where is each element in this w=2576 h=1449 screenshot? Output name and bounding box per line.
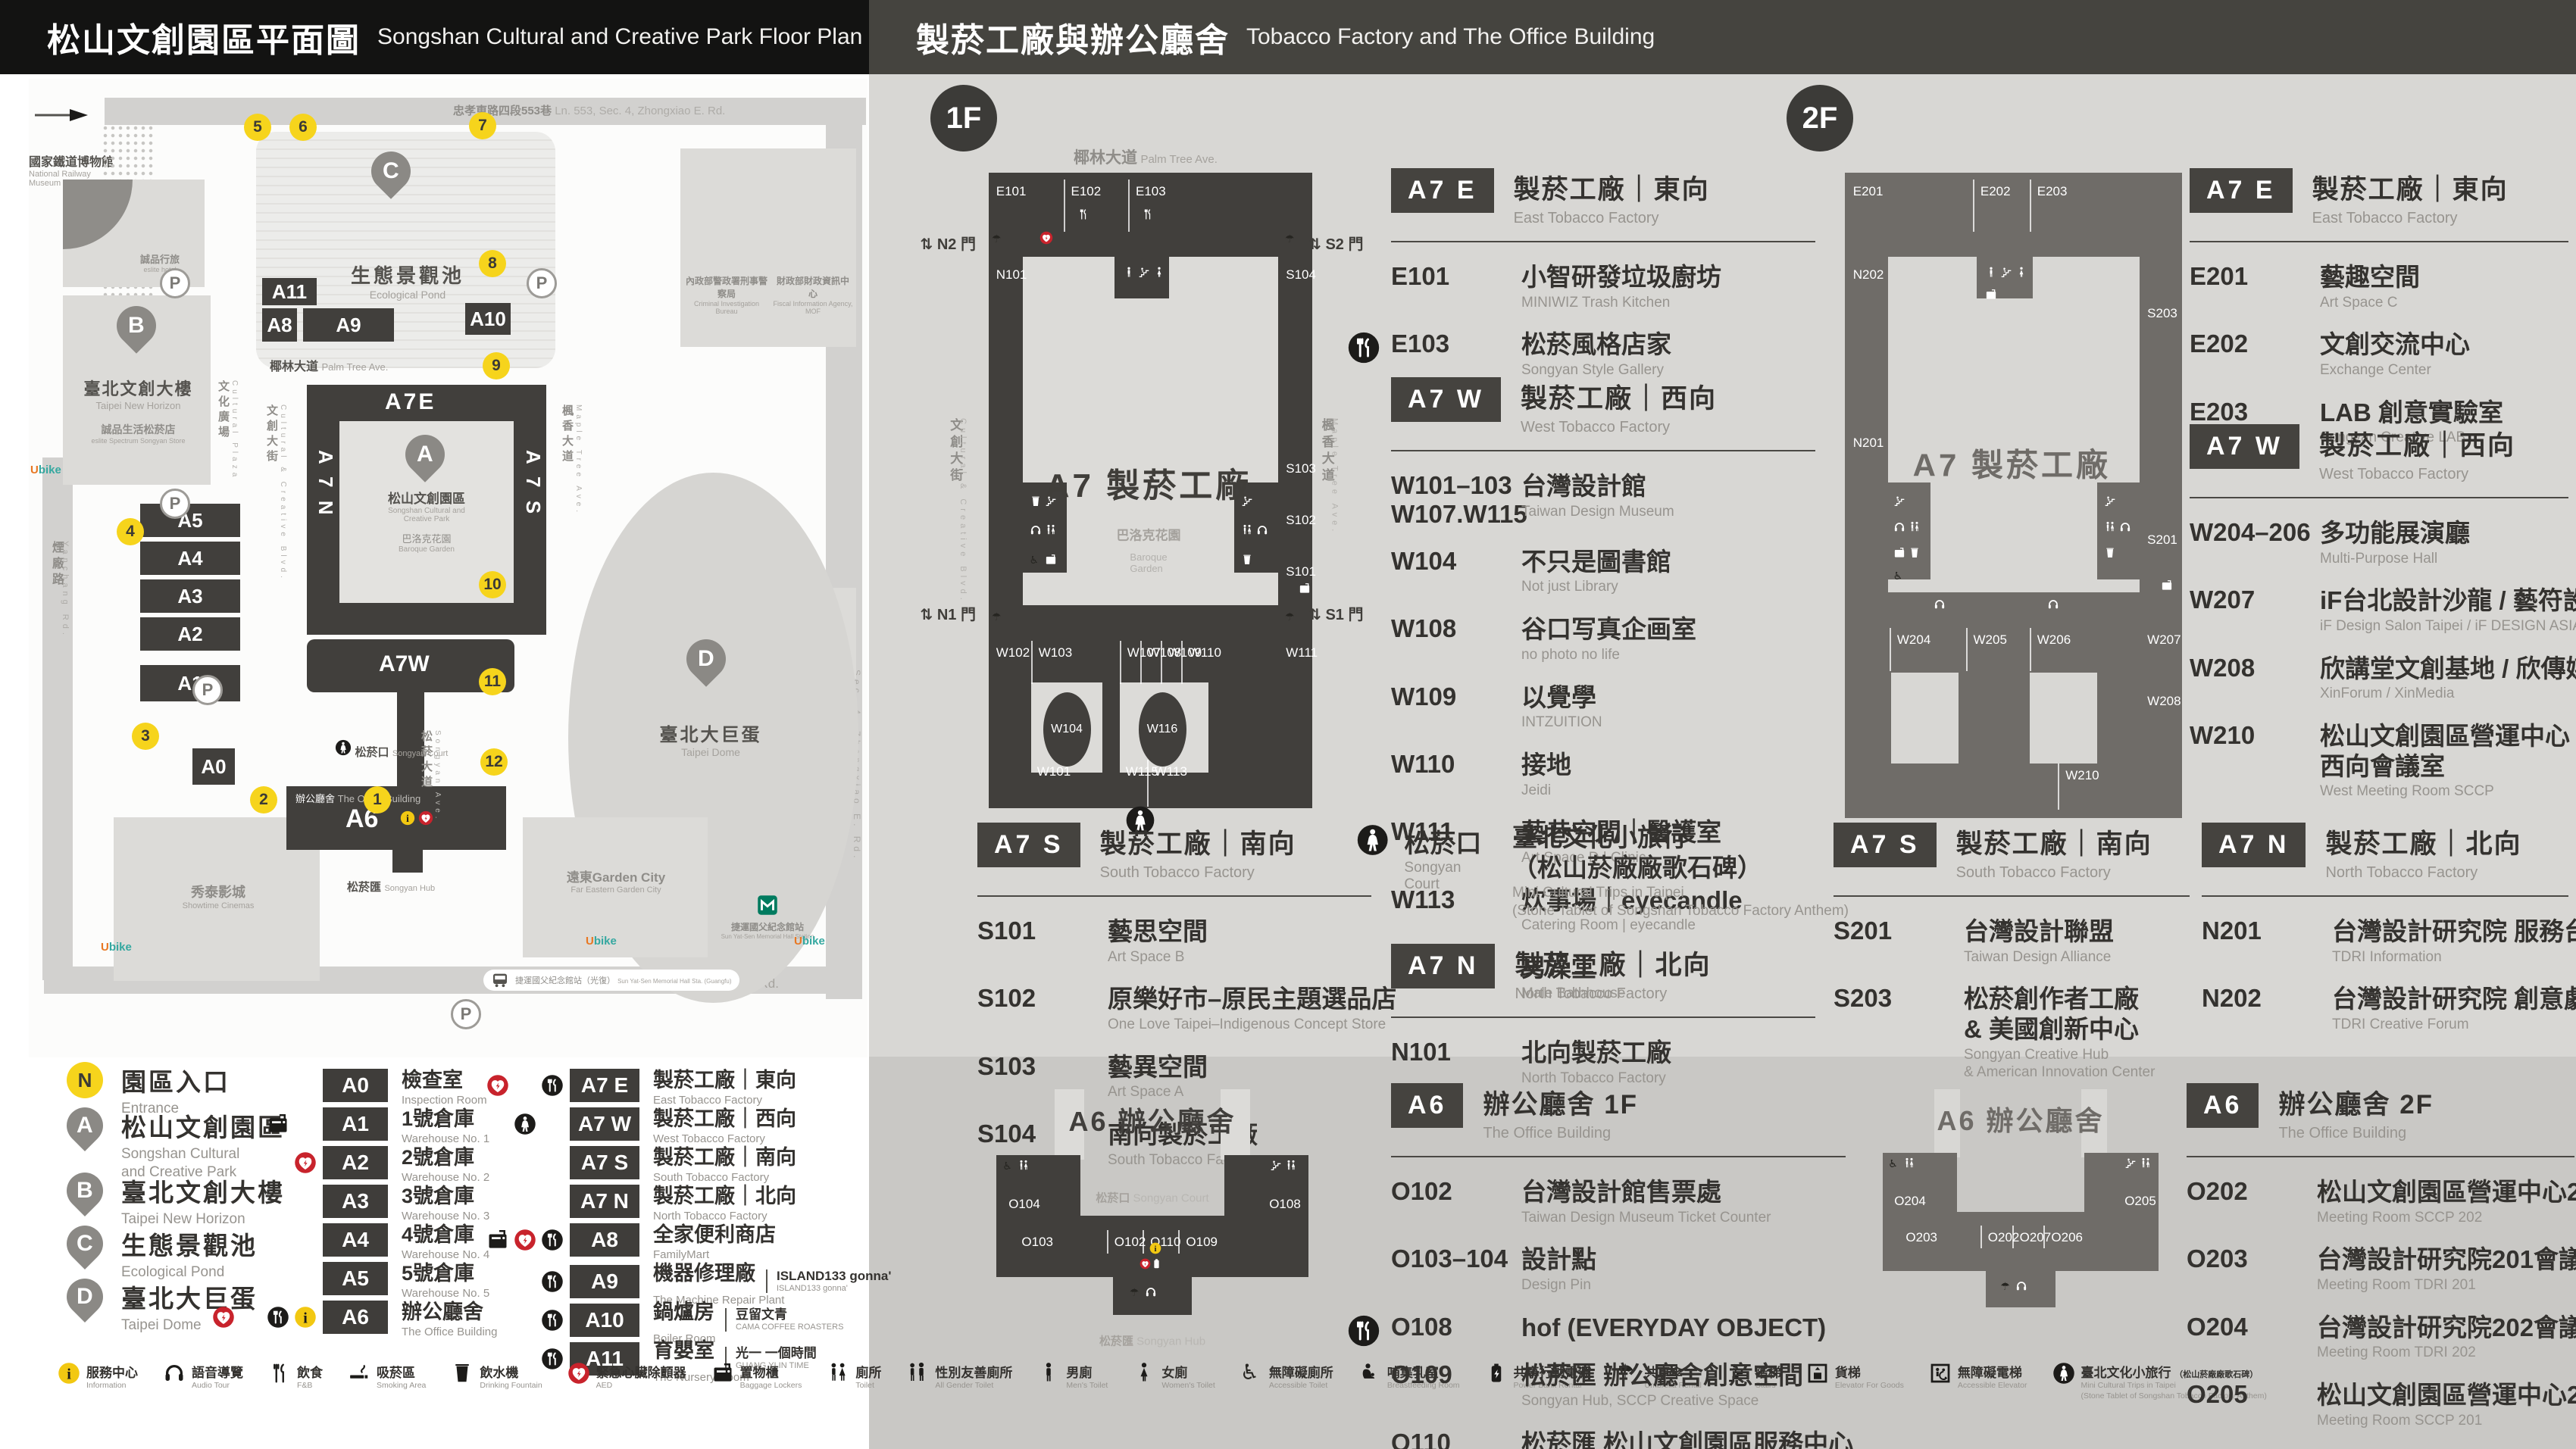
room-name-zh: 藝異空間: [1108, 1052, 1208, 1082]
plan-icons: [1030, 495, 1057, 507]
room-name-en: West Meeting Room SCCP: [2320, 782, 2570, 801]
divider: [2190, 241, 2568, 242]
dining-icon: [1142, 208, 1154, 220]
room-name-en: Not just Library: [1521, 578, 1671, 596]
room-row: E201藝趣空間Art Space C: [2190, 262, 2568, 311]
umbrella-icon: ☂: [992, 611, 1004, 623]
plan-icons: [1123, 267, 1165, 279]
locker-icon: [1299, 582, 1311, 595]
plan-icons: [1985, 289, 1997, 301]
plan-icons: [2104, 521, 2131, 533]
room-name-en: Meeting Room SCCP 202: [2317, 1209, 2576, 1227]
room-row: S203松菸創作者工廠& 美國創新中心Songyan Creative Hub&…: [1834, 984, 2190, 1082]
section-title-en: North Tobacco Factory: [2325, 864, 2521, 882]
toilet-c-icon: [239, 1306, 262, 1329]
park-label: 松山文創園區Songshan Cultural andCreative Park…: [356, 488, 497, 554]
room-row: O108hof (EVERYDAY OBJECT): [1391, 1313, 1846, 1343]
gate-S1: ⇅ S1 門: [1308, 602, 1363, 624]
entrance-5: 5: [244, 114, 271, 141]
facility-male: 男廁Men's Toilet: [1037, 1362, 1108, 1391]
plan-room-W204: W204: [1890, 628, 1965, 671]
plan-center-label: A7 製菸工廠: [1913, 440, 2111, 486]
pond-label: 生態景觀池Ecological Pond: [317, 261, 499, 301]
map-building-a5: A5: [140, 504, 240, 537]
room-number: O202: [2187, 1177, 2317, 1226]
gov-block: [680, 148, 856, 347]
landmark-cinema: 秀泰影城Showtime Cinemas: [135, 882, 302, 910]
headset-icon: [1256, 524, 1268, 536]
room-number: E202: [2190, 329, 2320, 379]
plan-icons: ☂: [1130, 1286, 1157, 1298]
locker-icon: [711, 1362, 734, 1385]
dining-c-icon: [1347, 331, 1380, 364]
toilet-icon: [827, 1362, 849, 1385]
room-name-zh: 小智研發垃圾廚坊: [1521, 262, 1721, 292]
info-map-icon: i: [1149, 1242, 1161, 1258]
plan-room-W207: W207: [2141, 628, 2183, 684]
stairs-icon: [1138, 267, 1150, 279]
plan-icons: ☂: [2000, 1280, 2027, 1292]
divider: [977, 895, 1371, 897]
cup-icon: [2104, 547, 2116, 559]
a6-plan-title: A6 辦公廳舍: [1068, 1100, 1236, 1139]
plan-court: [1891, 673, 1959, 763]
section-a6-2f: A6辦公廳舍 2FThe Office BuildingO202松山文創園區營運…: [2187, 1083, 2574, 1449]
section-title-zh: 製菸工廠｜南向: [1100, 823, 1296, 861]
room-name-zh: 藝趣空間: [2320, 262, 2420, 292]
umbrella-icon: ☂: [2000, 1280, 2012, 1292]
info-icon: i: [58, 1362, 80, 1385]
section-a7n-1f: A7 N製菸工廠｜北向North Tobacco FactoryN101北向製菸…: [1391, 944, 1815, 1105]
entrance-12: 12: [480, 748, 508, 776]
room-number: O102: [1391, 1177, 1521, 1226]
stairs-icon: [2124, 1157, 2137, 1170]
locker-icon: [1893, 547, 1905, 559]
gate-N2門: ⇅ N2 門: [921, 232, 976, 254]
plan-room-W116: W116: [1139, 692, 1186, 767]
room-row: W208欣講堂文創基地 / 欣傳媒XinForum / XinMedia: [2190, 654, 2568, 703]
cup-icon: [1909, 547, 1921, 559]
right-title-zh: 製菸工廠與辦公廳舍: [916, 13, 1230, 61]
stairs-icon: [2000, 267, 2012, 279]
legend-marker-b: B: [59, 1165, 111, 1216]
powerbank-icon: [1151, 1258, 1162, 1269]
svg-text:i: i: [67, 1366, 71, 1383]
section-title-zh: 辦公廳舍 2F: [2278, 1083, 2434, 1122]
plan-room-O109: O109: [1178, 1230, 1225, 1254]
locker-icon: [486, 1229, 509, 1251]
metro-icon: [756, 894, 779, 917]
culture-trip-icon: [335, 739, 352, 756]
room-name-zh: 以覺學: [1521, 682, 1602, 713]
section-code: A7 S: [977, 823, 1080, 867]
label-cultural-blvd: 文創大街: [264, 404, 280, 465]
legend-place: C生態景觀池Ecological Pond: [67, 1226, 258, 1282]
room-number: W104: [1391, 547, 1521, 596]
floor-badge-1f: 1F: [930, 85, 997, 151]
plan-icons: [1030, 524, 1057, 536]
room-name-en: TDRI Information: [2332, 948, 2576, 967]
section-a7n-2f: A7 N製菸工廠｜北向North Tobacco FactoryN201台灣設計…: [2202, 823, 2568, 1052]
stairs-icon: [1893, 495, 1905, 507]
section-a7e-1f: A7 E製菸工廠｜東向East Tobacco FactoryE101小智研發垃…: [1391, 168, 1815, 398]
plan-room-O202: O202: [1980, 1226, 2014, 1248]
plan-room-O207: O207: [2012, 1226, 2046, 1248]
room-row: E103松菸風格店家Songyan Style Gallery: [1391, 329, 1815, 379]
entrance-4: 4: [117, 518, 144, 545]
room-row: W204–206多功能展演廳Multi-Purpose Hall: [2190, 518, 2568, 567]
room-row: O102台灣設計館售票處Taiwan Design Museum Ticket …: [1391, 1177, 1846, 1226]
entrance-8: 8: [479, 250, 506, 277]
room-row: W207iF台北設計沙龍 / 藝符設計iF Design Salon Taipe…: [2190, 586, 2568, 635]
room-name-zh: 台灣設計聯盟: [1964, 917, 2114, 947]
room-name-zh: 谷口写真企画室: [1521, 614, 1696, 645]
legend-marker-n: N: [67, 1062, 103, 1098]
toilet-c-icon: [514, 1074, 536, 1097]
entrance-10: 10: [479, 571, 506, 598]
legend-building-a6: iA6辦公廳舍The Office Building: [323, 1295, 497, 1338]
aed-icon: [212, 1306, 235, 1329]
entrance-11: 11: [479, 668, 506, 695]
plan-room-W102: W102: [990, 641, 1027, 697]
section-title-zh: 製菸工廠｜西向: [1521, 377, 1717, 416]
room-number: S102: [977, 984, 1108, 1033]
left-title-zh: 松山文創園區平面圖: [47, 13, 361, 61]
street-palm: 椰林大道 Palm Tree Ave.: [1074, 145, 1218, 168]
room-row: W101–103W107.W115台灣設計館Taiwan Design Muse…: [1391, 471, 1815, 529]
dining-icon: [1077, 208, 1089, 220]
divider: [1391, 1156, 1846, 1157]
section-title-en: South Tobacco Factory: [1100, 864, 1296, 882]
room-name-zh: 原樂好市–原民主題選品店: [1108, 984, 1396, 1014]
plan-room-O204: O204: [1888, 1189, 1929, 1212]
headset-icon: [2015, 1280, 2027, 1292]
legend-building-a5: A55號倉庫Warehouse No. 5: [323, 1257, 489, 1300]
section-title-zh: 製菸工廠｜西向: [2319, 424, 2515, 463]
map-building-a7w: A7W: [379, 651, 430, 677]
court-title-zh: 松菸口: [1404, 823, 1497, 860]
facility-allgender: 性別友善廁所All Gender Toilet: [906, 1362, 1012, 1391]
entrance-7: 7: [469, 112, 496, 139]
plan-room-O205: O205: [2118, 1189, 2159, 1212]
section-a6-1f: A6辦公廳舍 1FThe Office BuildingO102台灣設計館售票處…: [1391, 1083, 1846, 1449]
plan-room-E201: E201: [1847, 180, 1977, 233]
plan-icons: [2124, 1157, 2152, 1170]
a6-map-icons: i: [400, 810, 452, 826]
section-code: A7 N: [2202, 823, 2306, 867]
breastfeeding-icon: [1358, 1362, 1381, 1385]
room-name-en: Taiwan Design Museum: [1521, 503, 1674, 521]
gate-N1門: ⇅ N1 門: [921, 602, 976, 624]
room-name-zh: 北向製菸工廠: [1521, 1038, 1671, 1068]
section-code: A6: [1391, 1083, 1463, 1128]
label-maple-ave-en: Maple Tree Ave.: [574, 404, 583, 516]
room-row: O109松菸匯 辦公廳舍創意空間Songyan Hub, SCCP Creati…: [1391, 1360, 1846, 1410]
room-number: O203: [2187, 1244, 2317, 1294]
section-title-zh: 製菸工廠｜東向: [1514, 168, 1710, 207]
map-building-a11: A11: [262, 278, 317, 305]
facility-female: 女廁Women's Toilet: [1133, 1362, 1215, 1391]
legend-building-a7s: A7 S製菸工廠｜南向South Tobacco Factory: [570, 1141, 796, 1184]
legend-place-zh: 生態景觀池: [121, 1226, 258, 1262]
section-code: A7 E: [2190, 168, 2293, 213]
room-name-en: Multi-Purpose Hall: [2320, 550, 2470, 568]
room-name-zh: 台灣設計館: [1521, 471, 1674, 501]
room-number: W204–206: [2190, 518, 2320, 567]
headset-icon: [2047, 598, 2059, 611]
room-name-zh: 不只是圖書館: [1521, 547, 1671, 577]
legend-building-a2: A22號倉庫Warehouse No. 2: [323, 1141, 489, 1184]
room-name-zh: LAB 創意實驗室: [2320, 398, 2503, 428]
plan-icons: ♿: [1888, 1157, 1915, 1170]
section-title-zh: 製菸工廠｜北向: [1515, 944, 1711, 982]
plan-icons: [2047, 598, 2059, 611]
legend-building-a3: A33號倉庫Warehouse No. 3: [323, 1179, 489, 1223]
aed-map-icon: [1039, 231, 1053, 248]
room-name-zh: 設計點: [1521, 1244, 1596, 1275]
locker-icon: [1045, 554, 1057, 566]
dining-c-icon: [1347, 1314, 1380, 1348]
floor1-plan: 椰林大道 Palm Tree Ave.文創大街Cultural & Creati…: [971, 173, 1312, 818]
room-number: N101: [1391, 1038, 1521, 1087]
legend-building-a7n: A7 N製菸工廠｜北向North Tobacco Factory: [570, 1179, 796, 1223]
plan-room-O203: O203: [1899, 1226, 1946, 1248]
room-name-en: iF Design Salon Taipei / iF DESIGN ASIA: [2320, 617, 2576, 635]
plan-icons: [1985, 267, 2027, 279]
toilet-icon: [1018, 1160, 1030, 1172]
office-label: 辦公廳舍 The Office Building: [295, 791, 420, 805]
legend-building-a0: A0檢查室Inspection Room: [323, 1063, 487, 1107]
room-row: O204台灣設計研究院202會議室Meeting Room TDRI 202: [2187, 1313, 2574, 1362]
plan-room-S103: S103: [1280, 457, 1317, 507]
room-name-en: Meeting Room TDRI 201: [2317, 1276, 2576, 1294]
legend-building-a4: A44號倉庫Warehouse No. 4: [323, 1218, 489, 1261]
floor-badge-2f: 2F: [1787, 85, 1853, 151]
landmark-gov2: 財政部財政資訊中心Fiscal Information Agency, MOF: [773, 274, 853, 315]
plan-icons: [1893, 521, 1921, 533]
headset-icon: [1893, 521, 1905, 533]
map-building-a9: A9: [303, 308, 394, 342]
plan-icons: [1299, 582, 1311, 595]
plan-icons: ☂: [992, 233, 1004, 245]
room-name-zh: 松菸匯 辦公廳舍創意空間: [1521, 1360, 1803, 1391]
room-name-en: MINIWIZ Trash Kitchen: [1521, 294, 1721, 312]
room-number: S203: [1834, 984, 1964, 1082]
facility-smoking: 吸菸區Smoking Area: [348, 1362, 426, 1391]
aed-icon: [418, 810, 433, 826]
ubike-icon: Ubike: [794, 935, 825, 948]
facility-strip: i服務中心Information語音導覽Audio Tour飲食F&B吸菸區Sm…: [58, 1362, 2292, 1401]
toilet-icon: [2104, 521, 2116, 533]
plan-room-E102: E102: [1064, 180, 1136, 233]
room-number: W110: [1391, 750, 1521, 799]
parking-icon: P: [451, 999, 481, 1029]
map-building-a0: A0: [192, 748, 235, 785]
cup-icon: [1030, 495, 1042, 507]
room-name-zh: 松菸創作者工廠& 美國創新中心: [1964, 984, 2155, 1044]
aed-map-icon: [1140, 1258, 1162, 1273]
section-title-zh: 辦公廳舍 1F: [1483, 1083, 1638, 1122]
road-left: [42, 457, 73, 980]
facility-locker: 置物櫃Baggage Lockers: [711, 1362, 802, 1391]
toilet-icon: [1285, 1160, 1297, 1172]
facility-wheelchair: ♿無障礙廁所Accessible Toilet: [1240, 1362, 1333, 1391]
room-name-zh: 藝思空間: [1108, 917, 1208, 947]
room-name-en: Exchange Center: [2320, 361, 2470, 379]
aed-icon: [514, 1229, 536, 1251]
room-name-en: Taiwan Design Alliance: [1964, 948, 2114, 967]
room-name-zh: 台灣設計研究院 服務台: [2332, 917, 2576, 947]
plan-room-W104: W104: [1043, 692, 1091, 767]
room-number: O108: [1391, 1313, 1521, 1343]
room-name-en: Design Pin: [1521, 1276, 1596, 1294]
room-name-zh: 松山文創園區營運中心西向會議室: [2320, 721, 2570, 781]
room-name-zh: 文創交流中心: [2320, 329, 2470, 360]
wheelchair-icon: ♿: [1893, 570, 1905, 582]
map-building-a1: A1: [140, 665, 240, 701]
section-title-en: The Office Building: [2278, 1125, 2434, 1142]
room-row: O202松山文創園區營運中心202會議室Meeting Room SCCP 20…: [2187, 1177, 2574, 1226]
stairs-icon: [1045, 495, 1057, 507]
toilet-c-icon: [294, 1113, 317, 1135]
room-number: W101–103W107.W115: [1391, 471, 1521, 529]
room-number: E201: [2190, 262, 2320, 311]
road-label-palm: 椰林大道 Palm Tree Ave.: [270, 356, 388, 374]
info-icon: i: [294, 1306, 317, 1329]
plan-room-E203: E203: [2030, 180, 2183, 233]
headset-icon: [1145, 1286, 1157, 1298]
section-a7w-2f: A7 W製菸工廠｜西向West Tobacco FactoryW204–206多…: [2190, 424, 2568, 819]
facility-toilet: 廁所Toilet: [827, 1362, 881, 1391]
entrance-9: 9: [483, 352, 510, 379]
a6-plan-hub: 松菸匯 Songyan Hub: [1099, 1332, 1205, 1348]
ubike-icon: Ubike: [101, 941, 132, 954]
umbrella-icon: ☂: [1130, 1286, 1142, 1298]
locker-icon: [2161, 579, 2173, 592]
map-building-a7e: A7E: [385, 389, 436, 415]
info-icon: i: [1149, 1242, 1161, 1254]
male-icon: [1037, 1362, 1060, 1385]
plan-icons: [1241, 524, 1268, 536]
plan-room-O102: O102: [1107, 1230, 1144, 1254]
dining-c-icon: [541, 1270, 564, 1293]
bus-icon: [491, 971, 509, 989]
section-title-en: East Tobacco Factory: [1514, 210, 1710, 227]
plan-icons: ☂: [1285, 233, 1297, 245]
entrance-1: 1: [364, 786, 391, 814]
accessible-elevator-icon: [1929, 1362, 1952, 1385]
svg-text:i: i: [1154, 1245, 1156, 1254]
room-row: O203台灣設計研究院201會議室Meeting Room TDRI 201: [2187, 1244, 2574, 1294]
room-name-en: Songyan Hub, SCCP Creative Space: [1521, 1392, 1803, 1410]
section-title-en: The Office Building: [1483, 1125, 1638, 1142]
label-songyan-ave-en: Songyan Ave.: [433, 730, 442, 823]
facility-cup: 飲水機Drinking Fountain: [451, 1362, 542, 1391]
room-name-zh: 松菸風格店家: [1521, 329, 1671, 360]
toilet-icon: [2140, 1157, 2152, 1170]
room-name-en: Meeting Room SCCP 201: [2317, 1412, 2576, 1430]
parking-icon: P: [160, 268, 190, 298]
toilet-icon: [1241, 524, 1253, 536]
room-row: S102原樂好市–原民主題選品店One Love Taipei–Indigeno…: [977, 984, 1371, 1033]
facility-accessible-elevator: 無障礙電梯Accessible Elevator: [1929, 1362, 2027, 1391]
plan-room-S201: S201: [2141, 528, 2183, 578]
plan-garden-en: BaroqueGarden: [1130, 551, 1167, 574]
divider: [1391, 241, 1815, 242]
divider: [2202, 895, 2568, 897]
legend-place-zh: 松山文創園區: [121, 1107, 285, 1144]
plan-icons: ♿: [1030, 554, 1057, 566]
legend-marker-d: D: [59, 1271, 111, 1323]
room-name-en: Songyan Creative Hub& American Innovatio…: [1964, 1046, 2155, 1082]
dining-c-icon: [541, 1309, 564, 1332]
label-songyan-ave: 松菸大道: [418, 730, 434, 791]
parking-icon: P: [192, 675, 223, 705]
map-building-a3: A3: [140, 579, 240, 613]
room-name-zh: iF台北設計沙龍 / 藝符設計: [2320, 586, 2576, 616]
map-building-a10: A10: [465, 303, 511, 335]
plan-icons: [1893, 547, 1921, 559]
headset-icon: [1934, 598, 1946, 611]
section-code: A7 N: [1391, 944, 1495, 988]
room-name-zh: 接地: [1521, 750, 1571, 780]
svg-text:i: i: [406, 813, 409, 824]
left-title-en: Songshan Cultural and Creative Park Floo…: [377, 24, 862, 50]
room-row: W108谷口写真企画室no photo no life: [1391, 614, 1815, 664]
svg-text:i: i: [303, 1310, 308, 1326]
entrance-6: 6: [289, 114, 317, 141]
legend-place-zh: 園區入口: [121, 1062, 230, 1098]
dining-c-icon: [541, 1074, 564, 1097]
room-row: O103–104設計點Design Pin: [1391, 1244, 1846, 1294]
toilet-icon: [1903, 1157, 1915, 1170]
room-name-en: Taiwan Design Museum Ticket Counter: [1521, 1209, 1771, 1227]
street-cultural-en: Cultural & Creative Blvd.: [958, 418, 968, 604]
room-row: N101北向製菸工廠North Tobacco Factory: [1391, 1038, 1815, 1087]
landmark-eslite-hotel: 誠品行旅eslite hotel: [118, 251, 202, 273]
room-number: W108: [1391, 614, 1521, 664]
stairs-icon: [2104, 495, 2116, 507]
room-row: S101藝思空間Art Space B: [977, 917, 1371, 966]
male-icon: [1985, 267, 1997, 279]
parking-icon: P: [160, 489, 190, 519]
section-title-zh: 製菸工廠｜北向: [2325, 823, 2521, 861]
section-code: A6: [2187, 1083, 2259, 1128]
culture-trip-icon: [514, 1113, 536, 1135]
culture-trip-icon: [2052, 1362, 2075, 1385]
plan-icons: ☂: [1285, 611, 1297, 623]
plan-room-S102: S102: [1280, 508, 1317, 558]
legend-building-a1: A11號倉庫Warehouse No. 1: [323, 1102, 489, 1145]
room-row: E202文創交流中心Exchange Center: [2190, 329, 2568, 379]
aed-icon: [1140, 1258, 1151, 1269]
legend-place: B臺北文創大樓Taipei New Horizon: [67, 1173, 285, 1229]
legend-building-a7e: A7 E製菸工廠｜東向East Tobacco Factory: [570, 1063, 796, 1107]
smoking-icon: [348, 1362, 370, 1385]
room-number: W109: [1391, 682, 1521, 732]
umbrella-icon: ☂: [1285, 233, 1297, 245]
room-row: S201台灣設計聯盟Taiwan Design Alliance: [1834, 917, 2190, 966]
room-number: W210: [2190, 721, 2320, 801]
plan-room-W101: W101: [1031, 760, 1105, 806]
room-row: W110接地Jeidi: [1391, 750, 1815, 799]
stairs-icon: [1241, 495, 1253, 507]
map-building-a7s: A 7 S: [521, 450, 545, 517]
toilet-c-icon: [541, 1113, 564, 1135]
dining-icon: [268, 1362, 291, 1385]
room-row: E101小智研發垃圾廚坊MINIWIZ Trash Kitchen: [1391, 262, 1815, 311]
room-number: O205: [2187, 1380, 2317, 1429]
